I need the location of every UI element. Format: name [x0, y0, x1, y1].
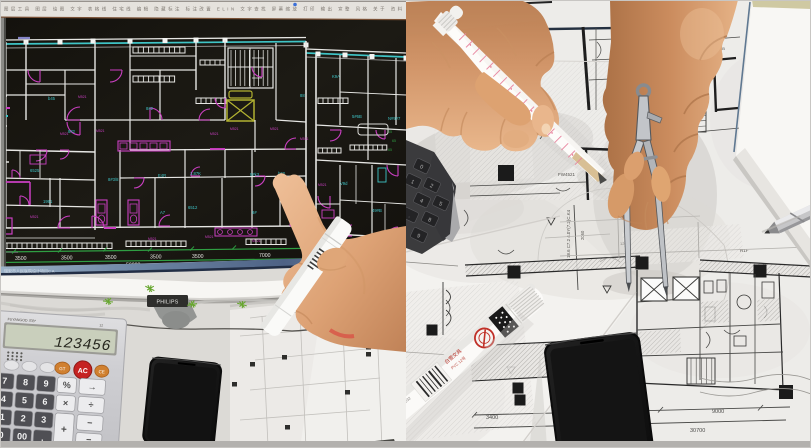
- svg-text:9000: 9000: [712, 409, 724, 415]
- svg-text:49#B: 49#B: [372, 208, 382, 213]
- svg-text:GT: GT: [59, 366, 66, 371]
- svg-text:3400: 3400: [486, 415, 498, 421]
- svg-text:+: +: [61, 424, 68, 435]
- svg-text:V9d: V9d: [340, 181, 348, 186]
- svg-text:M521: M521: [230, 127, 239, 131]
- svg-text:7000: 7000: [259, 253, 271, 259]
- svg-text:5#6B: 5#6B: [352, 114, 362, 119]
- svg-text:65: 65: [388, 148, 392, 152]
- svg-text:18.6 C7.2 4.0Y(7.2)C.K4: 18.6 C7.2 4.0Y(7.2)C.K4: [566, 209, 571, 258]
- svg-text:M521: M521: [270, 127, 279, 131]
- svg-text:6512: 6512: [188, 205, 198, 210]
- svg-text:65: 65: [388, 130, 392, 134]
- svg-text:M521: M521: [318, 183, 327, 187]
- svg-text:8: 8: [23, 377, 29, 387]
- svg-text:4: 4: [1, 394, 7, 404]
- svg-text:6: 6: [42, 397, 48, 407]
- svg-text:A7: A7: [160, 210, 166, 215]
- svg-text:8#2: 8#2: [146, 106, 154, 111]
- svg-text:3500: 3500: [192, 254, 204, 260]
- svg-text:6525: 6525: [30, 168, 40, 173]
- svg-text:N#9#7: N#9#7: [388, 116, 401, 121]
- svg-text:瑞安市人民医院设计项目C A: 瑞安市人民医院设计项目C A: [4, 268, 55, 274]
- svg-text:3500: 3500: [61, 256, 73, 262]
- svg-text:3500: 3500: [105, 255, 117, 261]
- svg-text:M521: M521: [30, 215, 39, 219]
- svg-text:00: 00: [17, 431, 28, 442]
- svg-text:M521: M521: [300, 137, 309, 141]
- svg-text:M521: M521: [60, 132, 69, 136]
- svg-text:R1F: R1F: [740, 248, 749, 253]
- svg-text:×: ×: [63, 398, 69, 408]
- svg-text:M521: M521: [205, 235, 214, 239]
- svg-text:9#k3: 9#k3: [250, 172, 260, 177]
- svg-text:AC: AC: [77, 368, 88, 376]
- svg-text:8#2: 8#2: [68, 129, 76, 134]
- svg-text:5: 5: [22, 395, 28, 405]
- svg-text:2: 2: [20, 413, 26, 423]
- svg-text:%: %: [62, 380, 71, 391]
- svg-text:65: 65: [392, 139, 396, 143]
- svg-text:E4R: E4R: [158, 173, 166, 178]
- svg-text:88: 88: [300, 93, 305, 98]
- svg-text:8#3/8: 8#3/8: [108, 177, 119, 182]
- svg-text:12: 12: [99, 323, 103, 327]
- svg-text:−: −: [87, 418, 93, 428]
- svg-text:M521: M521: [78, 95, 87, 99]
- svg-text:→: →: [87, 381, 97, 392]
- svg-text:7: 7: [2, 376, 8, 386]
- svg-text:b45: b45: [48, 96, 56, 101]
- svg-text:3: 3: [41, 415, 47, 425]
- svg-text:FW4521: FW4521: [558, 172, 576, 177]
- svg-text:M521: M521: [210, 132, 219, 136]
- svg-text:2060: 2060: [580, 230, 585, 240]
- svg-text:K9A: K9A: [332, 74, 340, 79]
- svg-text:1991: 1991: [43, 199, 53, 204]
- svg-text:8#: 8#: [252, 210, 257, 215]
- svg-text:1.87K: 1.87K: [190, 171, 201, 176]
- svg-text:PHILIPS: PHILIPS: [157, 300, 179, 306]
- svg-text:30700: 30700: [690, 428, 705, 434]
- svg-text:M521: M521: [96, 129, 105, 133]
- svg-text:÷: ÷: [88, 400, 94, 410]
- svg-text:CE: CE: [98, 369, 105, 374]
- svg-text:3500: 3500: [15, 256, 27, 262]
- svg-text:M521: M521: [148, 237, 157, 241]
- svg-text:9: 9: [43, 378, 49, 388]
- svg-text:3500: 3500: [150, 255, 162, 261]
